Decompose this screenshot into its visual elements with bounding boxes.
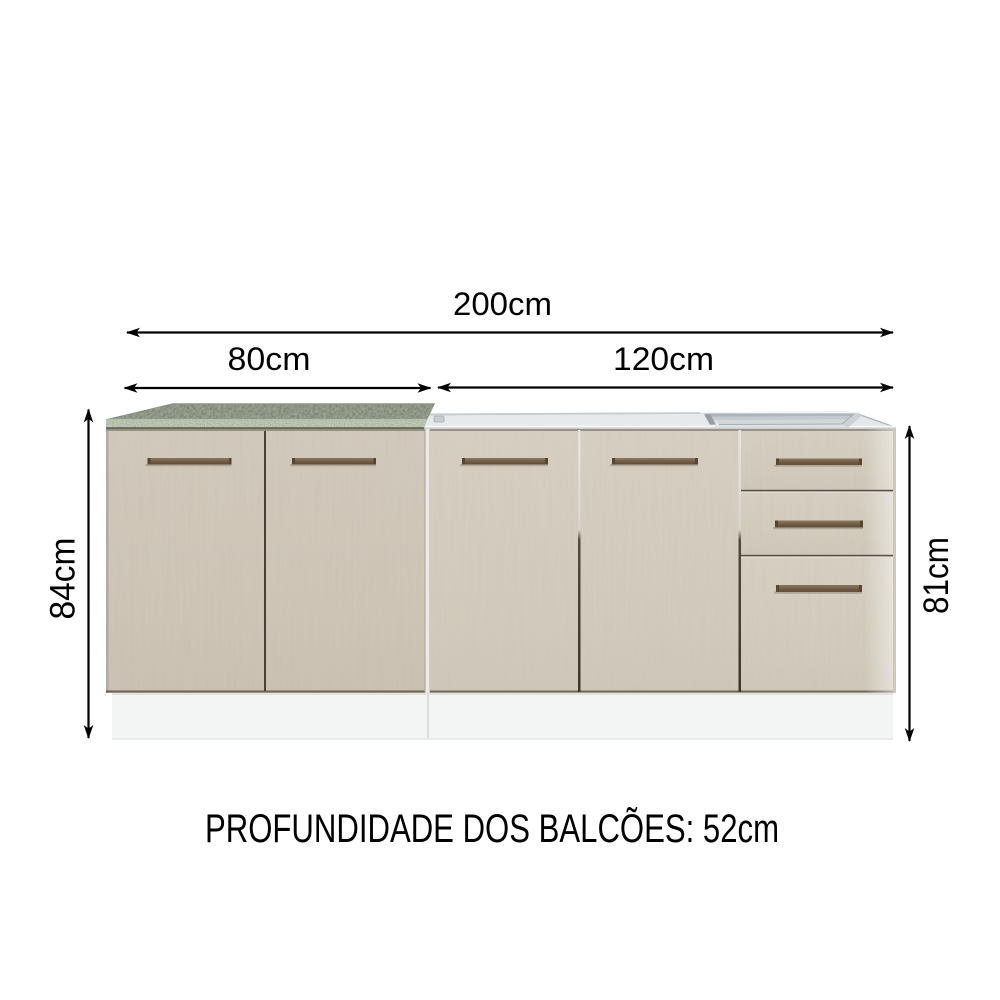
svg-text:200cm: 200cm <box>453 286 552 322</box>
svg-text:84cm: 84cm <box>44 538 83 620</box>
svg-text:80cm: 80cm <box>228 341 311 377</box>
svg-text:81cm: 81cm <box>917 537 956 614</box>
svg-text:120cm: 120cm <box>613 341 714 377</box>
svg-text:PROFUNDIDADE DOS BALCÕES: 52cm: PROFUNDIDADE DOS BALCÕES: 52cm <box>205 806 779 851</box>
